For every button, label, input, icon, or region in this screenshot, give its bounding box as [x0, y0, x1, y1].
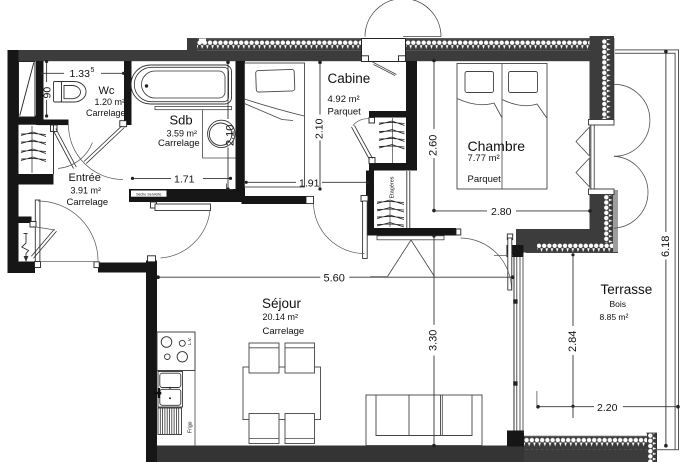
svg-text:Carrelage: Carrelage: [67, 197, 109, 208]
svg-text:Carrelage: Carrelage: [263, 326, 305, 337]
svg-text:1.33: 1.33: [70, 68, 91, 80]
svg-text:6.18: 6.18: [660, 236, 672, 257]
svg-text:3.91 m²: 3.91 m²: [71, 185, 102, 195]
svg-text:90: 90: [42, 87, 54, 99]
svg-text:3.30: 3.30: [427, 330, 439, 351]
svg-text:2.84: 2.84: [567, 331, 579, 352]
svg-text:Parquet: Parquet: [468, 174, 502, 185]
svg-text:2.20: 2.20: [597, 402, 618, 414]
svg-text:Entrée: Entrée: [69, 172, 101, 184]
svg-text:2.80: 2.80: [491, 206, 512, 218]
svg-text:Carrelage: Carrelage: [158, 138, 200, 149]
svg-text:Terrasse: Terrasse: [601, 282, 653, 297]
svg-text:2.10: 2.10: [224, 125, 236, 146]
svg-text:20.14 m²: 20.14 m²: [263, 312, 299, 322]
svg-text:Chambre: Chambre: [468, 138, 526, 154]
svg-text:8.85 m²: 8.85 m²: [600, 312, 629, 322]
svg-text:Bois: Bois: [610, 299, 627, 309]
svg-text:Etagères: Etagères: [390, 176, 396, 198]
svg-text:Sdb: Sdb: [170, 112, 193, 127]
svg-text:1.91: 1.91: [299, 177, 320, 189]
svg-text:7.77 m²: 7.77 m²: [468, 153, 500, 164]
svg-text:4.92 m²: 4.92 m²: [328, 94, 360, 105]
svg-text:Frigo: Frigo: [188, 421, 194, 433]
svg-text:Wc: Wc: [99, 85, 115, 97]
svg-text:1.20 m²: 1.20 m²: [95, 97, 126, 107]
svg-text:3.59 m²: 3.59 m²: [167, 128, 198, 138]
svg-text:5: 5: [91, 67, 95, 74]
svg-text:2.60: 2.60: [428, 135, 440, 156]
svg-text:1.71: 1.71: [174, 174, 195, 186]
svg-text:Cabine: Cabine: [328, 71, 371, 86]
svg-text:2.10: 2.10: [314, 118, 326, 139]
svg-text:5.60: 5.60: [324, 273, 345, 285]
svg-text:Sèche Serviette: Sèche Serviette: [136, 192, 161, 196]
svg-text:Séjour: Séjour: [262, 296, 302, 311]
svg-text:Parquet: Parquet: [328, 107, 362, 118]
svg-text:Carrelage: Carrelage: [86, 108, 126, 118]
svg-text:L.V.: L.V.: [187, 337, 192, 345]
